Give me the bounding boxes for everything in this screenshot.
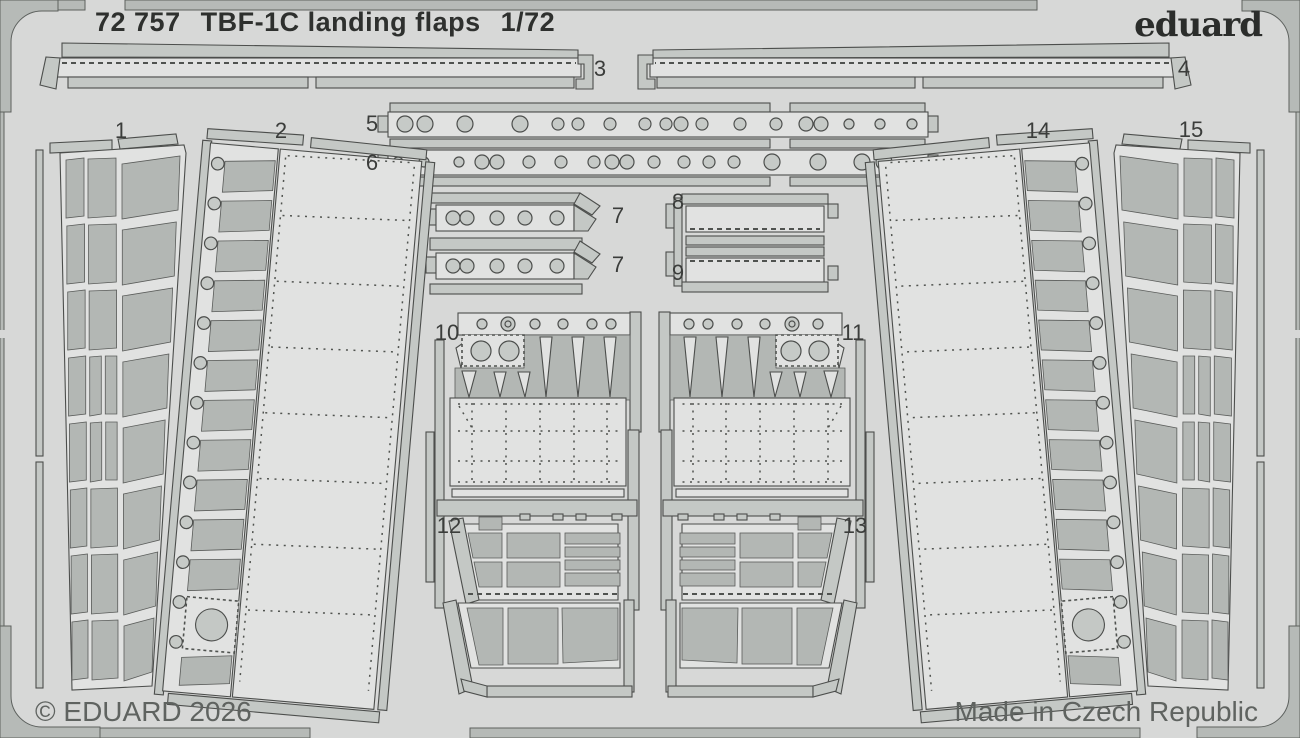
part-14	[864, 126, 1147, 723]
part-7-lower-label: 7	[612, 252, 624, 277]
part-7-upper-label: 7	[612, 203, 624, 228]
part-13	[666, 514, 857, 697]
part-7-upper	[426, 193, 600, 250]
part-13-label: 13	[843, 513, 867, 538]
part-9-label: 9	[672, 260, 684, 285]
fret-drawing: 72 757TBF-1C landing flaps1/72 eduard	[0, 0, 1300, 738]
part-6	[378, 150, 938, 186]
photoetch-fret-sheet: 72 757TBF-1C landing flaps1/72 eduard	[0, 0, 1300, 738]
part-3-label: 3	[594, 56, 606, 81]
part-12	[443, 514, 634, 697]
part-5-label: 5	[366, 111, 378, 136]
part-6-label: 6	[366, 150, 378, 175]
copyright-text: © EDUARD 2026	[35, 696, 252, 727]
part-8-9-bracket	[666, 194, 838, 292]
part-12-label: 12	[437, 513, 461, 538]
sheet-title: 72 757TBF-1C landing flaps1/72	[95, 7, 555, 37]
part-4	[638, 43, 1191, 89]
part-2-label: 2	[275, 118, 287, 143]
part-8-label: 8	[672, 189, 684, 214]
part-1-label: 1	[115, 118, 127, 143]
part-10-label: 10	[435, 320, 459, 345]
made-in-text: Made in Czech Republic	[955, 696, 1259, 727]
part-5	[378, 103, 938, 148]
part-11-label: 11	[842, 320, 865, 345]
part-14-label: 14	[1026, 118, 1050, 143]
brand-logo: eduard	[1134, 5, 1262, 45]
part-15-label: 15	[1179, 117, 1203, 142]
part-4-label: 4	[1178, 56, 1190, 81]
part-2	[154, 126, 437, 723]
part-3	[40, 43, 593, 89]
